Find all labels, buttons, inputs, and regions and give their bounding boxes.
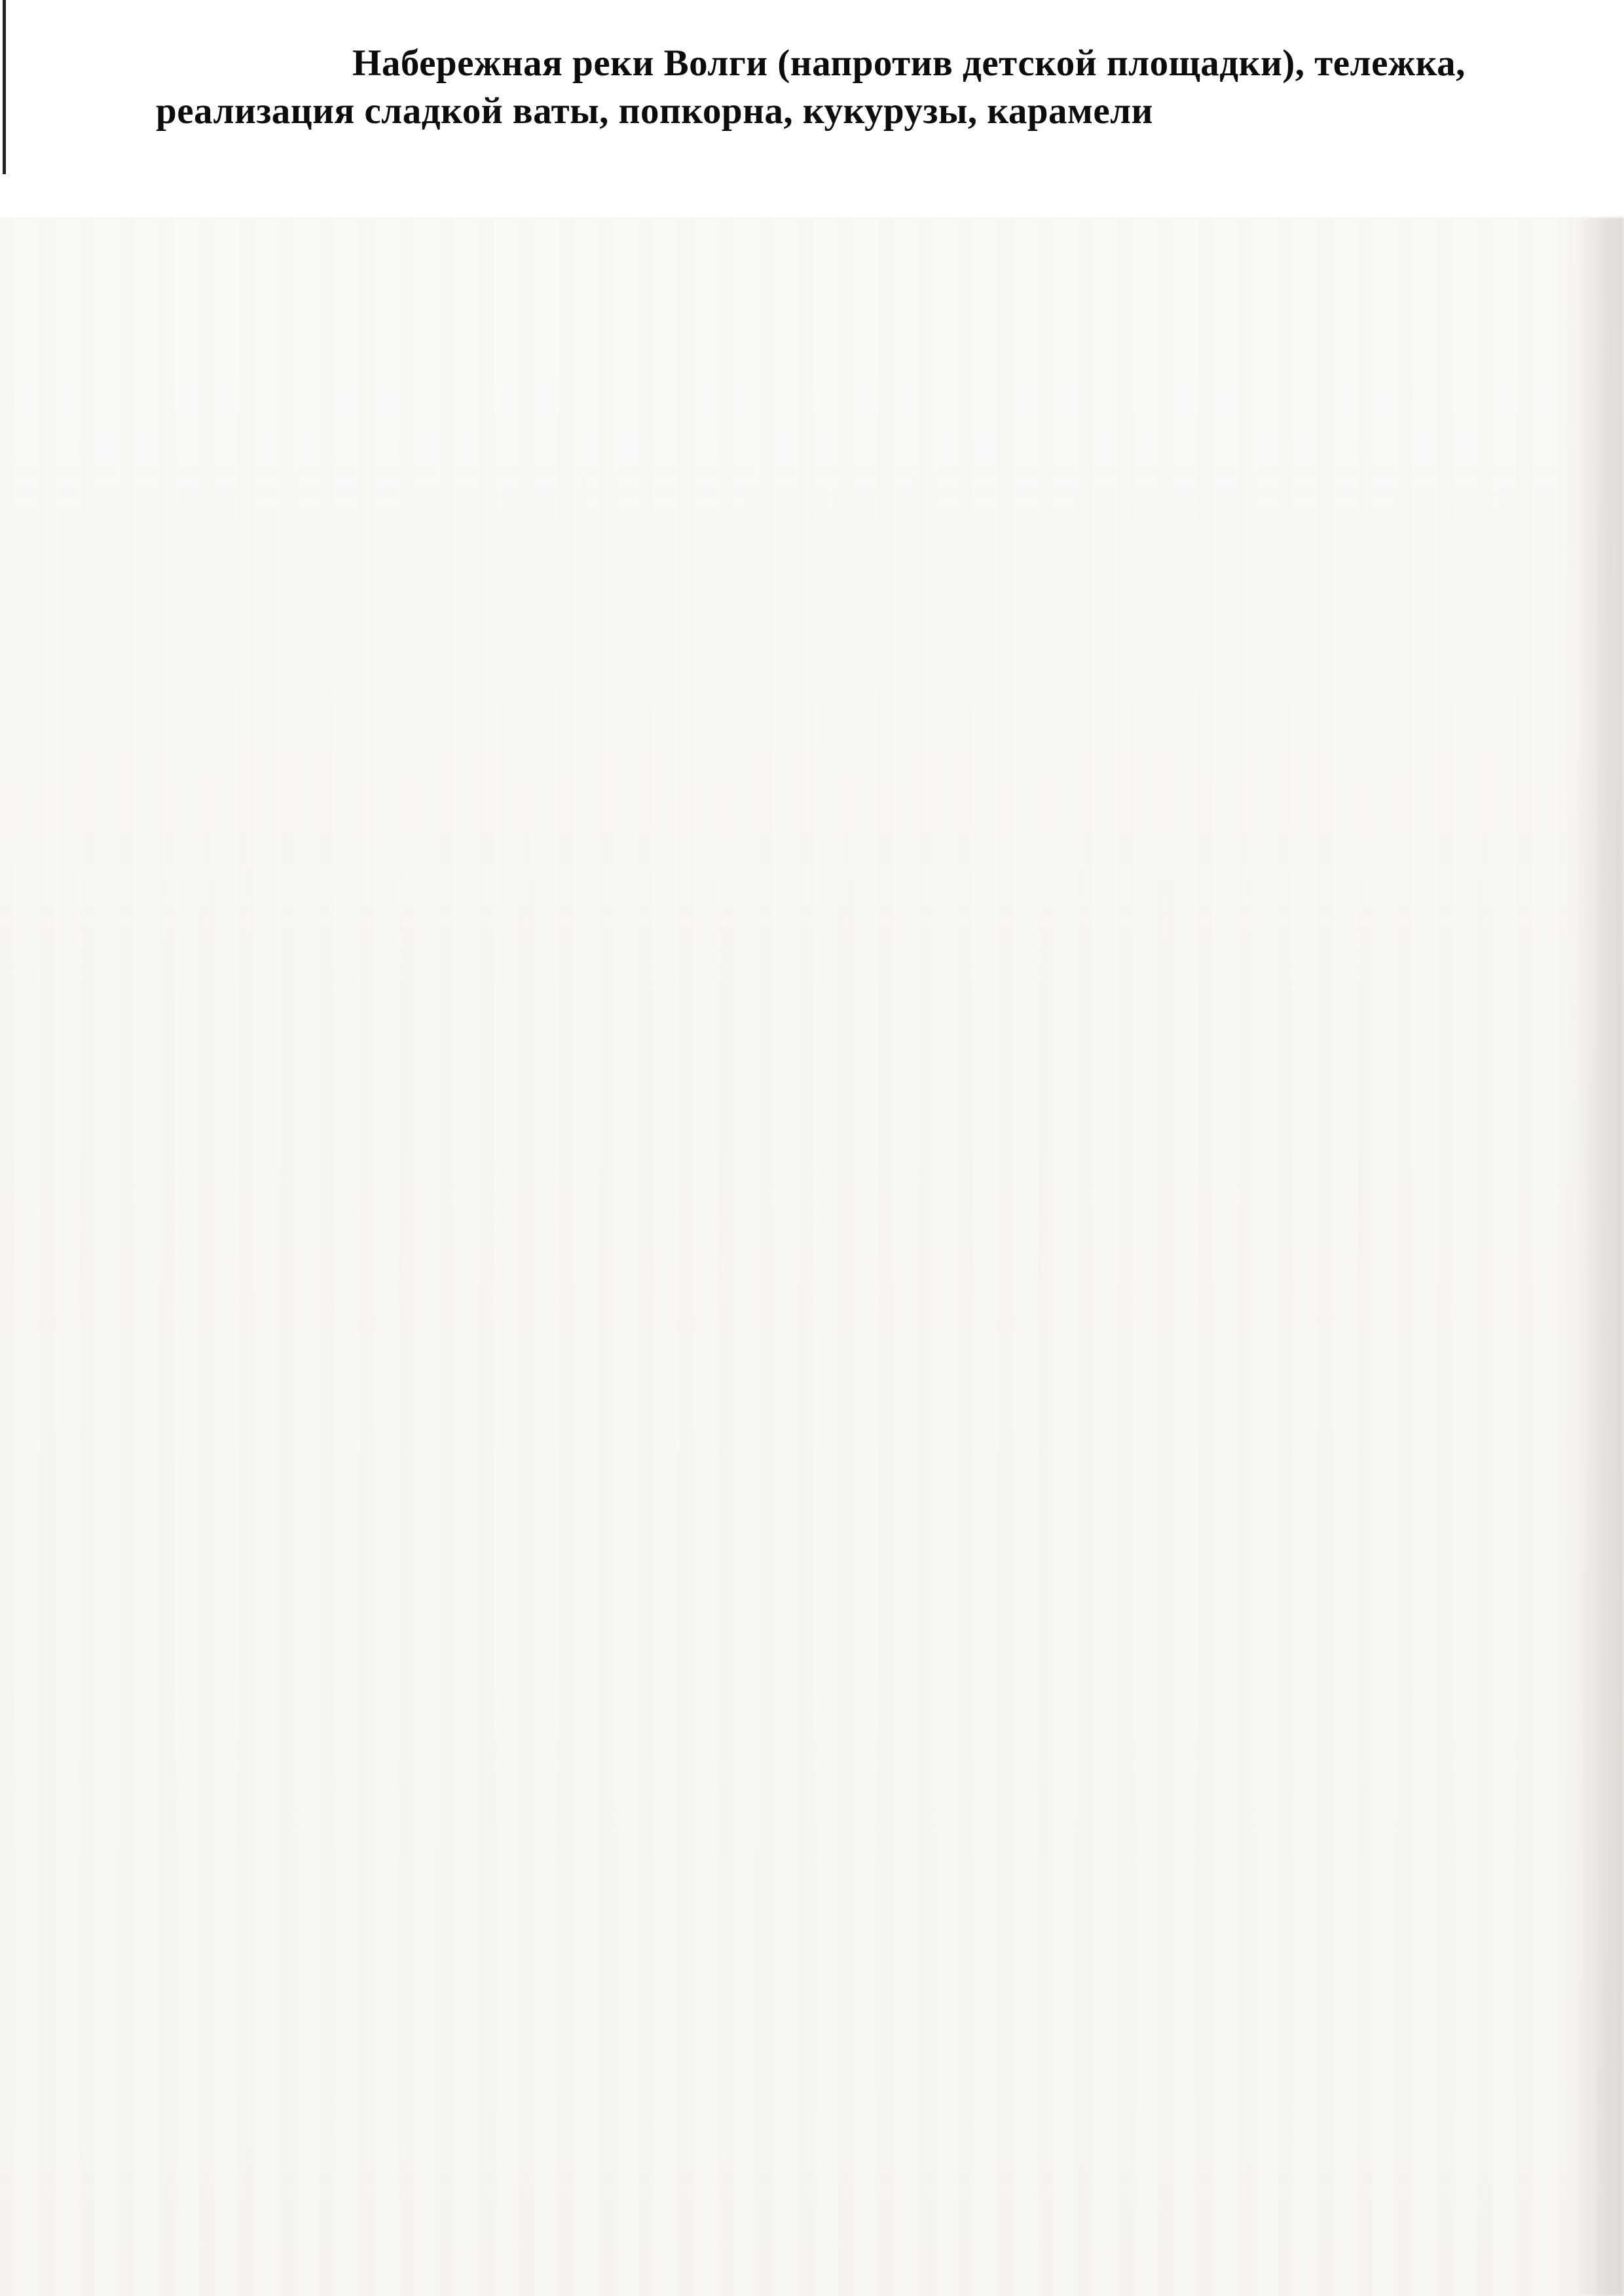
- map-canvas: [0, 0, 1624, 2296]
